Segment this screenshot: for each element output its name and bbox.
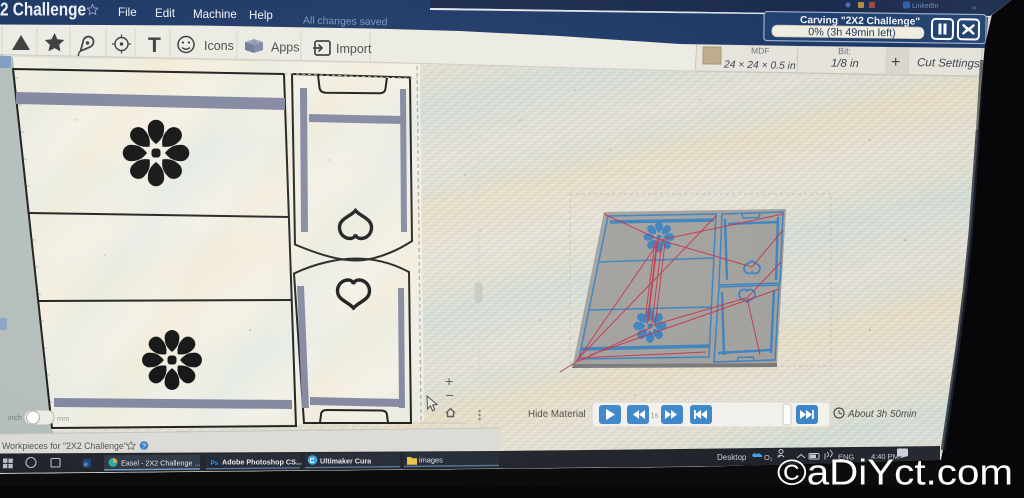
svg-text:©aDiYct.com: ©aDiYct.com — [777, 452, 1013, 493]
